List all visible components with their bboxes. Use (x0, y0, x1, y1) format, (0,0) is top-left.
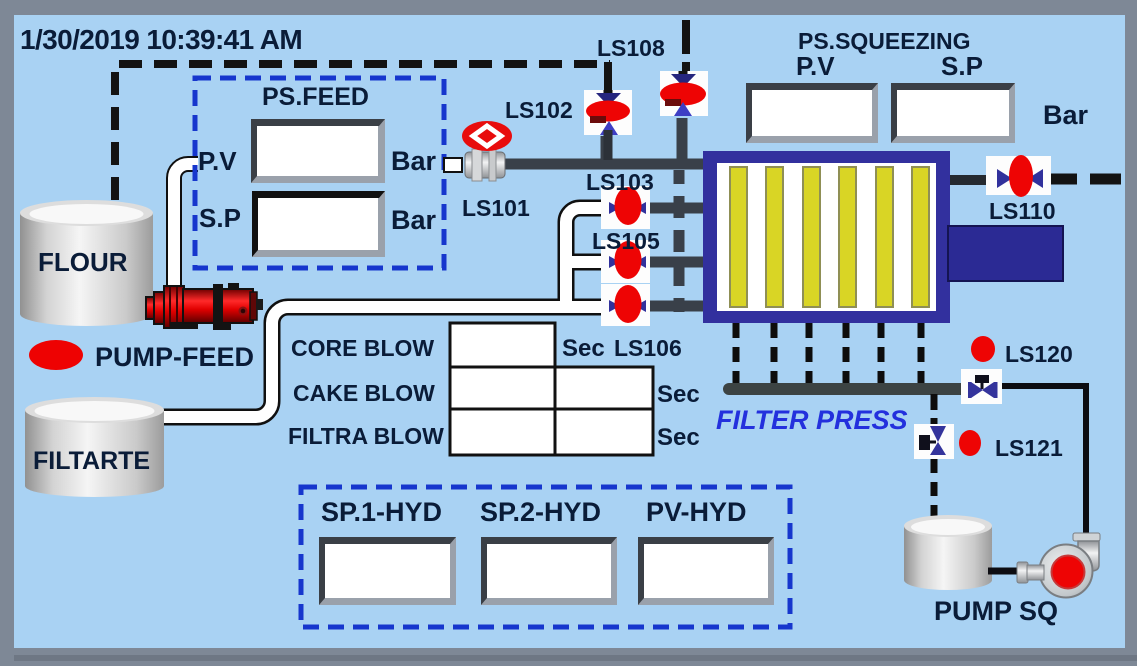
svg-text:LS121: LS121 (995, 435, 1063, 461)
svg-text:Bar: Bar (1043, 100, 1089, 130)
svg-text:LS110: LS110 (989, 198, 1056, 224)
svg-text:FILTRA BLOW: FILTRA BLOW (288, 423, 444, 449)
svg-text:Sec: Sec (657, 424, 700, 451)
svg-text:Sec: Sec (657, 381, 700, 408)
svg-text:P.V: P.V (198, 146, 237, 176)
svg-text:S.P: S.P (941, 51, 983, 81)
svg-text:FILTER PRESS: FILTER PRESS (716, 405, 908, 435)
svg-text:PS.FEED: PS.FEED (262, 83, 369, 111)
svg-text:LS102: LS102 (505, 97, 573, 123)
svg-text:PUMP-FEED: PUMP-FEED (95, 342, 254, 372)
svg-text:FILTARTE: FILTARTE (33, 447, 150, 475)
svg-text:Bar: Bar (391, 205, 437, 235)
svg-text:LS106: LS106 (614, 335, 682, 361)
svg-text:PUMP SQ: PUMP SQ (934, 596, 1058, 626)
svg-text:Bar: Bar (391, 146, 437, 176)
svg-text:LS105: LS105 (592, 228, 660, 254)
svg-text:S.P: S.P (199, 203, 241, 233)
svg-text:LS103: LS103 (586, 169, 654, 195)
svg-text:CAKE BLOW: CAKE BLOW (293, 380, 435, 406)
svg-text:LS120: LS120 (1005, 341, 1073, 367)
svg-text:PV-HYD: PV-HYD (646, 497, 747, 527)
svg-text:FLOUR: FLOUR (38, 247, 128, 277)
svg-text:LS108: LS108 (597, 35, 665, 61)
svg-text:CORE BLOW: CORE BLOW (291, 335, 434, 361)
svg-text:P.V: P.V (796, 51, 835, 81)
svg-text:1/30/2019 10:39:41 AM: 1/30/2019 10:39:41 AM (20, 24, 302, 55)
svg-text:LS101: LS101 (462, 195, 530, 221)
svg-text:SP.2-HYD: SP.2-HYD (480, 497, 601, 527)
svg-text:SP.1-HYD: SP.1-HYD (321, 497, 442, 527)
svg-text:Sec: Sec (562, 335, 605, 362)
